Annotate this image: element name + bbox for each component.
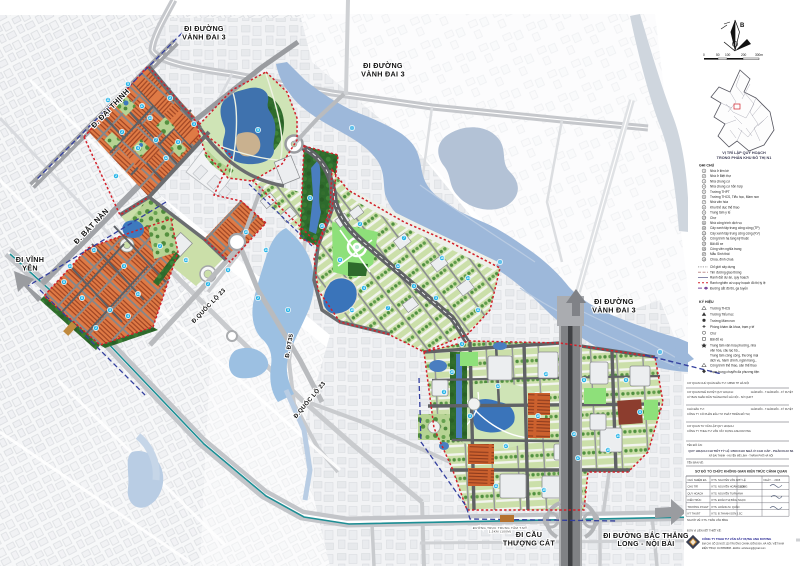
svg-text:7: 7 — [387, 306, 389, 310]
svg-text:GIÁM ĐỐC - T.GIÁM ĐỐC - KÝ: GIÁM ĐỐC - T.GIÁM ĐỐC - KÝ DUYỆT — [751, 391, 794, 394]
svg-text:ĐI ĐƯỜNGVÀNH ĐAI 3: ĐI ĐƯỜNGVÀNH ĐAI 3 — [182, 24, 226, 41]
svg-text:14: 14 — [92, 248, 96, 252]
svg-text:14: 14 — [68, 264, 72, 268]
svg-text:GHI CHÚ: GHI CHÚ — [699, 163, 715, 168]
svg-text:Trường THCS: Trường THCS — [710, 307, 730, 311]
svg-text:Công trình thể thao, sân thể t: Công trình thể thao, sân thể thao — [710, 364, 757, 368]
svg-text:2: 2 — [359, 222, 361, 226]
svg-text:15: 15 — [450, 370, 454, 374]
svg-text:4: 4 — [413, 284, 415, 288]
svg-text:14: 14 — [136, 292, 140, 296]
svg-text:10: 10 — [320, 224, 324, 228]
svg-text:dịch vụ, hành chính, ngân hàng: dịch vụ, hành chính, ngân hàng... — [710, 359, 757, 363]
svg-text:Trạm trung chuyển đa phương ti: Trạm trung chuyển đa phương tiện — [710, 370, 760, 374]
svg-text:15: 15 — [542, 488, 546, 492]
svg-text:ĐIỆN THOẠI: 04.35656888 -: ĐIỆN THOẠI: 04.35656888 - EMAIL: anhduon… — [702, 547, 766, 550]
svg-text:Ranh đất dự án, quy hoạch: Ranh đất dự án, quy hoạch — [710, 276, 749, 280]
svg-text:4: 4 — [309, 196, 311, 200]
svg-text:Trung tâm văn hóa phường, nhà: Trung tâm văn hóa phường, nhà — [710, 344, 756, 348]
svg-text:5: 5 — [127, 82, 129, 86]
svg-text:17: 17 — [504, 444, 508, 448]
svg-text:8: 8 — [63, 280, 65, 284]
svg-text:16: 16 — [440, 256, 444, 260]
svg-text:100: 100 — [725, 53, 731, 57]
svg-text:Chỉ giới xây dựng: Chỉ giới xây dựng — [710, 265, 735, 269]
svg-text:Tim đường giao thông: Tim đường giao thông — [710, 270, 742, 274]
svg-text:3: 3 — [469, 414, 471, 418]
svg-text:Bãi đỗ xe: Bãi đỗ xe — [710, 241, 724, 246]
svg-text:2: 2 — [169, 96, 171, 100]
svg-text:0: 0 — [703, 53, 705, 57]
svg-text:1/500: 1/500 — [739, 485, 746, 489]
svg-text:13: 13 — [148, 116, 152, 120]
svg-text:4: 4 — [137, 146, 139, 150]
svg-text:Trung tâm công cộng, thương mạ: Trung tâm công cộng, thương mại — [710, 354, 759, 358]
svg-text:Nhà công trình dịch vụ: Nhà công trình dịch vụ — [710, 221, 742, 225]
svg-text:Cây xanh tập trung công cộng (: Cây xanh tập trung công cộng (TP) — [710, 226, 760, 230]
svg-text:Cây xanh tập trung công cộng (: Cây xanh tập trung công cộng (KV) — [710, 231, 760, 235]
svg-text:3: 3 — [193, 122, 195, 126]
svg-text:2: 2 — [121, 130, 123, 134]
svg-text:2: 2 — [207, 282, 209, 286]
svg-text:3: 3 — [109, 308, 111, 312]
svg-text:Mẫu Sinh thái: Mẫu Sinh thái — [710, 251, 730, 256]
svg-text:8: 8 — [583, 378, 585, 382]
svg-text:CƠ QUAN TƯ VẤN LẬP QUY HOẠCH:: CƠ QUAN TƯ VẤN LẬP QUY HOẠCH: — [687, 424, 734, 428]
svg-text:12: 12 — [164, 156, 168, 160]
svg-text:Phòng khám đa khoa, trạm y tế: Phòng khám đa khoa, trạm y tế — [710, 325, 755, 329]
svg-text:11: 11 — [476, 308, 480, 312]
svg-text:14: 14 — [616, 434, 620, 438]
svg-text:10: 10 — [606, 448, 610, 452]
svg-text:ĐI ĐƯỜNGVÀNH ĐAI 3: ĐI ĐƯỜNGVÀNH ĐAI 3 — [361, 61, 405, 78]
svg-text:Công viên nghĩa trang: Công viên nghĩa trang — [710, 247, 742, 251]
svg-text:8: 8 — [639, 410, 641, 414]
svg-text:200: 200 — [741, 53, 747, 57]
svg-text:KTS. Đ.THANH SƠN J.SC: KTS. Đ.THANH SƠN J.SC — [712, 512, 743, 516]
svg-text:NGÀY ... 2015: NGÀY ... 2015 — [764, 478, 781, 482]
svg-text:Chùa, đình chuà: Chùa, đình chuà — [710, 257, 734, 261]
svg-text:XÃ ĐẠI THỊNH - HUYỆN MÊ LINH -: XÃ ĐẠI THỊNH - HUYỆN MÊ LINH - THÀNH PHỐ… — [709, 455, 774, 458]
svg-text:văn hóa, câu lạc bộ...: văn hóa, câu lạc bộ... — [710, 349, 740, 353]
svg-text:11: 11 — [106, 98, 110, 102]
svg-text:SƠ ĐỒ TỔ CHỨC KHÔNG GIAN KIẾN: SƠ ĐỒ TỔ CHỨC KHÔNG GIAN KIẾN TRÚC CẢNH … — [695, 469, 788, 474]
svg-text:Nhà chung cư: Nhà chung cư — [710, 179, 731, 183]
svg-text:ĐỊA CHỈ: SỐ 25 NGÕ 120 TRƯỜNG: ĐỊA CHỈ: SỐ 25 NGÕ 120 TRƯỜNG CHINH, ĐỐN… — [702, 543, 784, 546]
svg-text:15: 15 — [350, 308, 354, 312]
svg-text:2: 2 — [95, 326, 97, 330]
svg-text:Khu thể dục thể thao: Khu thể dục thể thao — [710, 205, 740, 209]
svg-text:Đường sắt đô thị, ga tuyến: Đường sắt đô thị, ga tuyến — [710, 285, 748, 290]
svg-text:Ranh nghiên cứu quy hoạch đô t: Ranh nghiên cứu quy hoạch đô thị tỷ lệ — [710, 281, 766, 285]
svg-text:GIÁM ĐỐC - T.GIÁM ĐỐC - KÝ: GIÁM ĐỐC - T.GIÁM ĐỐC - KÝ DUYỆT — [751, 408, 794, 411]
svg-text:7: 7 — [155, 138, 157, 142]
svg-text:14: 14 — [264, 248, 268, 252]
svg-text:2: 2 — [257, 296, 259, 300]
svg-text:8: 8 — [81, 296, 83, 300]
svg-text:16: 16 — [572, 432, 576, 436]
svg-text:300m: 300m — [755, 53, 763, 57]
svg-text:10: 10 — [244, 230, 248, 234]
svg-text:8: 8 — [227, 268, 229, 272]
svg-text:Nhà ở Biệt thự: Nhà ở Biệt thự — [710, 174, 732, 178]
svg-text:3: 3 — [443, 390, 445, 394]
svg-text:KTS. ĐOÀN THỊ BÍCH NGỌC: KTS. ĐOÀN THỊ BÍCH NGỌC — [712, 498, 746, 502]
svg-text:3: 3 — [123, 264, 125, 268]
svg-text:ĐI ĐƯỜNGVÀNH ĐAI 3: ĐI ĐƯỜNGVÀNH ĐAI 3 — [592, 297, 636, 314]
svg-text:17: 17 — [576, 456, 580, 460]
svg-text:Trung tâm y tế: Trung tâm y tế — [710, 211, 731, 215]
svg-text:Nhà văn hóa: Nhà văn hóa — [710, 200, 728, 204]
svg-text:13: 13 — [184, 258, 188, 262]
svg-text:50: 50 — [716, 53, 720, 57]
svg-text:6: 6 — [625, 378, 627, 382]
svg-text:2: 2 — [159, 244, 161, 248]
svg-text:CÔNG TY TNHH TƯ VẤN XÂY DỰNG A: CÔNG TY TNHH TƯ VẤN XÂY DỰNG ANH DƯƠNG — [702, 536, 772, 541]
svg-text:4: 4 — [461, 342, 463, 346]
svg-text:5: 5 — [287, 308, 289, 312]
svg-text:4: 4 — [363, 286, 365, 290]
svg-text:Trường THCS, Tiểu học, Mầm non: Trường THCS, Tiểu học, Mầm non — [710, 195, 759, 199]
svg-text:7: 7 — [403, 236, 405, 240]
svg-text:5: 5 — [257, 128, 259, 132]
svg-text:12: 12 — [496, 384, 500, 388]
svg-text:12: 12 — [396, 264, 400, 268]
svg-text:14: 14 — [466, 276, 470, 280]
svg-text:Trường THPT: Trường THPT — [710, 190, 730, 194]
svg-text:KÝ HIỆU: KÝ HIỆU — [699, 299, 714, 304]
svg-text:Nhà chung cư hỗn hợp: Nhà chung cư hỗn hợp — [710, 184, 743, 189]
svg-text:QUY HOẠCH: QUY HOẠCH — [688, 491, 704, 495]
svg-text:Nhà ở liền kề: Nhà ở liền kề — [710, 169, 729, 173]
svg-text:10: 10 — [536, 414, 540, 418]
svg-text:6: 6 — [339, 258, 341, 262]
svg-text:17: 17 — [140, 104, 144, 108]
svg-text:Công trình hạ tầng kỹ thuật: Công trình hạ tầng kỹ thuật — [710, 237, 749, 241]
svg-text:TRONG PHÂN KHU ĐÔ THỊ N1: TRONG PHÂN KHU ĐÔ THỊ N1 — [717, 155, 772, 160]
svg-text:Chợ: Chợ — [710, 331, 716, 335]
svg-text:Trường Tiểu học: Trường Tiểu học — [710, 313, 734, 317]
svg-text:4: 4 — [127, 314, 129, 318]
svg-text:Chợ: Chợ — [710, 216, 716, 220]
svg-text:VỊ TRÍ LẬP QUY HOẠCH: VỊ TRÍ LẬP QUY HOẠCH — [722, 150, 766, 155]
svg-text:11: 11 — [494, 484, 498, 488]
svg-text:3: 3 — [177, 140, 179, 144]
svg-text:Trường Mầm non: Trường Mầm non — [710, 319, 735, 323]
svg-text:Bãi đỗ xe: Bãi đỗ xe — [710, 337, 724, 342]
svg-text:3: 3 — [435, 296, 437, 300]
svg-text:B: B — [740, 23, 745, 29]
svg-text:QUY HOẠCH CHI TIẾT TỶ LỆ 1/500: QUY HOẠCH CHI TIẾT TỶ LỆ 1/500 KHU NHÀ Ở… — [688, 448, 793, 453]
svg-text:2: 2 — [115, 174, 117, 178]
svg-text:10: 10 — [544, 372, 548, 376]
